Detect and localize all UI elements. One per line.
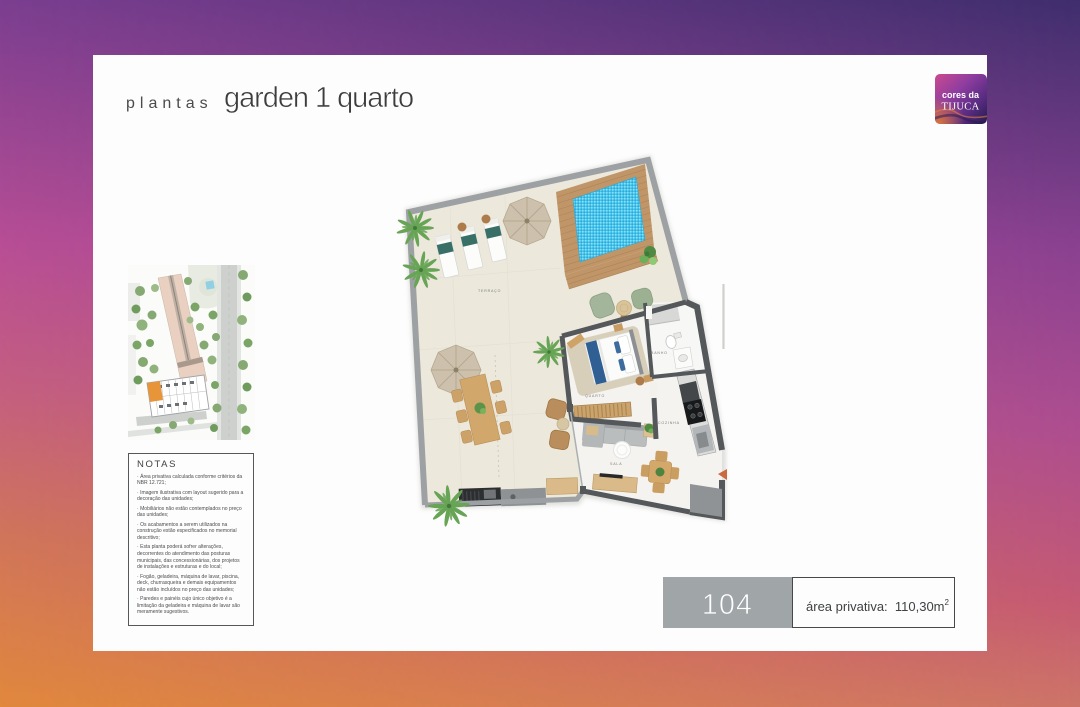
svg-text:QUARTO: QUARTO [585, 394, 605, 398]
svg-text:cores da: cores da [942, 90, 980, 100]
svg-text:SALA: SALA [610, 462, 622, 466]
svg-text:TIJUCA: TIJUCA [942, 102, 980, 113]
svg-text:TERRAÇO: TERRAÇO [478, 289, 501, 293]
svg-text:BANHO: BANHO [651, 351, 668, 355]
svg-text:COZINHA: COZINHA [658, 421, 680, 425]
